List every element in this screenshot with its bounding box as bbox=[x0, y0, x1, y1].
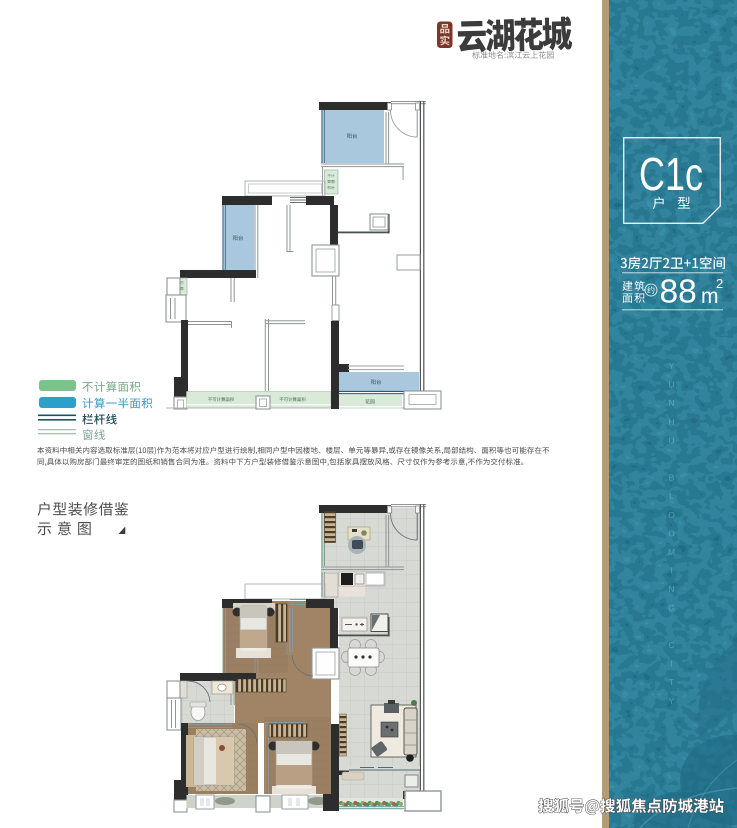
svg-text:T: T bbox=[669, 677, 674, 687]
svg-text:U: U bbox=[668, 435, 674, 445]
svg-text:N: N bbox=[668, 398, 674, 408]
svg-text:O: O bbox=[668, 528, 675, 538]
svg-text:O: O bbox=[668, 510, 675, 520]
svg-text:88: 88 bbox=[660, 274, 697, 311]
svg-text:M: M bbox=[668, 547, 675, 557]
svg-text:Y: Y bbox=[669, 696, 675, 706]
svg-text:I: I bbox=[670, 659, 672, 669]
svg-text:2: 2 bbox=[716, 276, 723, 291]
svg-text:I: I bbox=[670, 566, 672, 576]
svg-text:C1c: C1c bbox=[639, 148, 703, 200]
svg-text:L: L bbox=[669, 491, 674, 501]
svg-text:C: C bbox=[668, 640, 674, 650]
svg-text:H: H bbox=[668, 417, 674, 427]
svg-text:N: N bbox=[668, 584, 674, 594]
svg-text:G: G bbox=[668, 603, 675, 613]
svg-text:Y: Y bbox=[669, 361, 675, 371]
svg-text:B: B bbox=[669, 473, 675, 483]
svg-text:U: U bbox=[668, 380, 674, 390]
